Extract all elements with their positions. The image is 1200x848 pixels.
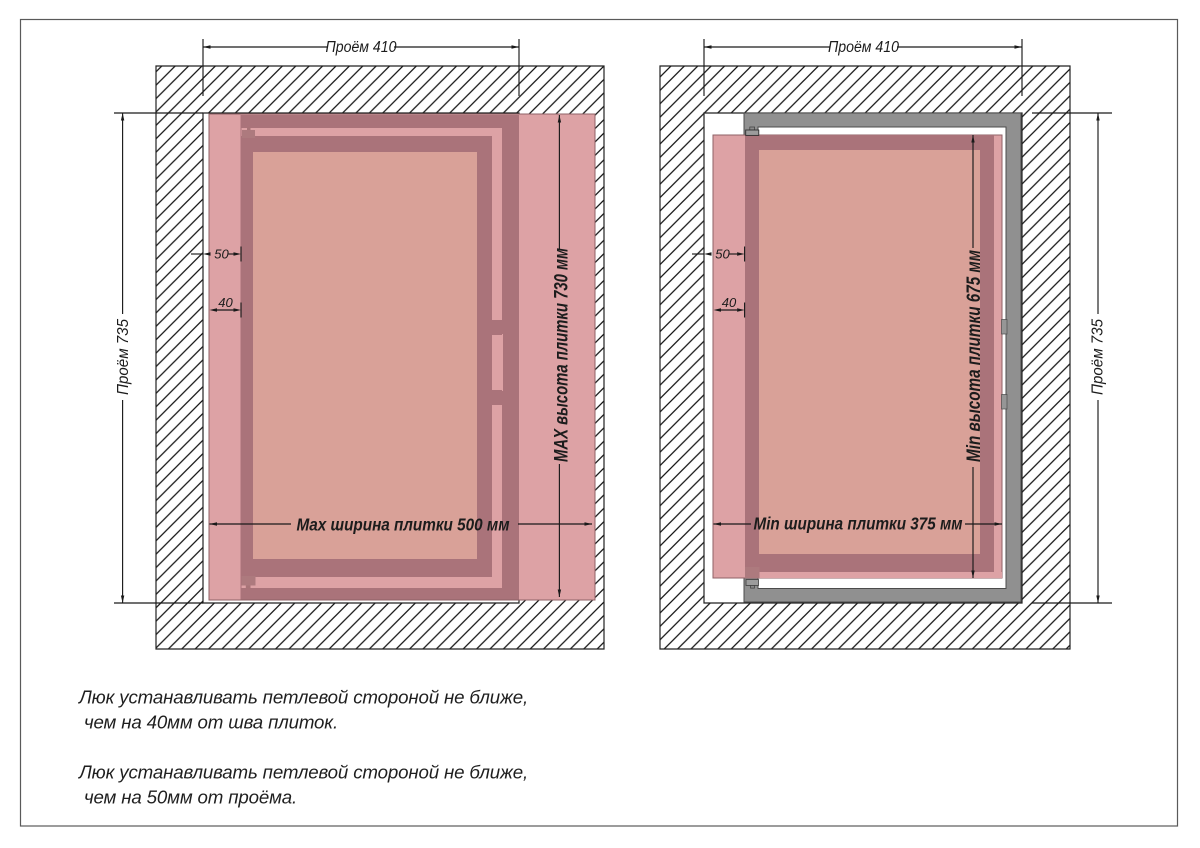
svg-text:чем на 50мм от проёма.: чем на 50мм от проёма. — [84, 787, 297, 808]
svg-text:Max ширина плитки 500 мм: Max ширина плитки 500 мм — [297, 515, 510, 535]
svg-text:MAX высота плитки 730 мм: MAX высота плитки 730 мм — [552, 248, 573, 462]
svg-text:Проём 410: Проём 410 — [828, 39, 899, 56]
svg-text:Люк устанавливать петлевой сто: Люк устанавливать петлевой стороной не б… — [78, 762, 528, 783]
svg-text:40: 40 — [722, 295, 737, 310]
svg-text:Проём 735: Проём 735 — [115, 319, 132, 395]
svg-text:Люк устанавливать петлевой сто: Люк устанавливать петлевой стороной не б… — [78, 687, 528, 708]
svg-text:Min высота плитки 675 мм: Min высота плитки 675 мм — [964, 250, 985, 462]
svg-text:чем на 40мм от шва плиток.: чем на 40мм от шва плиток. — [84, 712, 338, 733]
svg-text:Проём 735: Проём 735 — [1090, 319, 1107, 395]
svg-text:Min ширина плитки 375 мм: Min ширина плитки 375 мм — [754, 514, 963, 534]
svg-text:40: 40 — [218, 295, 233, 310]
svg-text:Проём 410: Проём 410 — [326, 39, 397, 56]
svg-text:50: 50 — [715, 247, 730, 262]
svg-text:50: 50 — [214, 247, 229, 262]
